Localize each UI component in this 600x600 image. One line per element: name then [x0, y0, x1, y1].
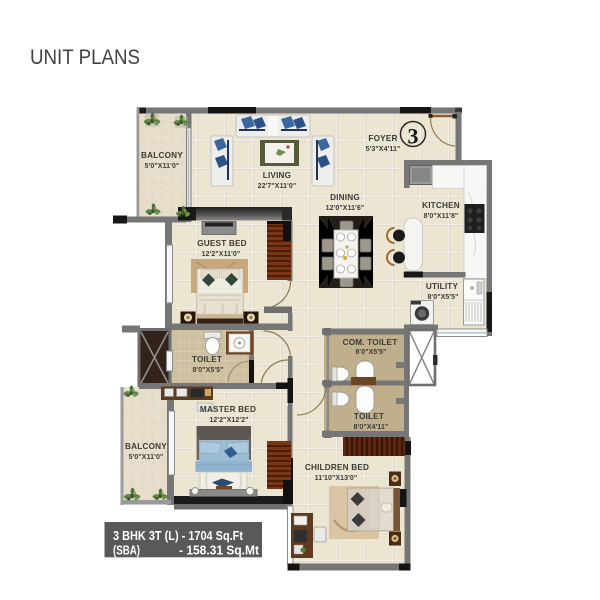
svg-text:3: 3: [408, 124, 419, 149]
svg-text:BALCONY: BALCONY: [141, 151, 183, 160]
svg-text:GUEST BED: GUEST BED: [197, 239, 247, 248]
svg-text:8'0"X4'11": 8'0"X4'11": [354, 424, 389, 431]
svg-text:5'3"X4'11": 5'3"X4'11": [366, 146, 401, 153]
svg-text:DINING: DINING: [330, 193, 360, 202]
svg-text:3 BHK 3T (L) - 1704 Sq.Ft: 3 BHK 3T (L) - 1704 Sq.Ft: [113, 528, 244, 543]
svg-text:UTILITY: UTILITY: [426, 282, 459, 291]
svg-text:LIVING: LIVING: [263, 171, 292, 180]
svg-text:CHILDREN BED: CHILDREN BED: [305, 463, 369, 472]
svg-text:5'0"X11'0": 5'0"X11'0": [129, 454, 164, 461]
svg-text:5'0"X11'0": 5'0"X11'0": [145, 163, 180, 170]
svg-text:TOILET: TOILET: [354, 412, 384, 421]
svg-text:(SBA): (SBA): [113, 543, 140, 558]
svg-text:12'2"X12'2": 12'2"X12'2": [209, 417, 248, 424]
svg-text:BALCONY: BALCONY: [125, 442, 167, 451]
svg-text:TOILET: TOILET: [192, 355, 222, 364]
svg-text:11'10"X13'0": 11'10"X13'0": [315, 475, 358, 482]
svg-text:- 158.31 Sq.Mt: - 158.31 Sq.Mt: [179, 543, 260, 558]
svg-text:UNIT PLANS: UNIT PLANS: [30, 45, 140, 69]
svg-text:22'7"X11'0": 22'7"X11'0": [258, 183, 297, 190]
svg-text:12'2"X11'0": 12'2"X11'0": [202, 251, 241, 258]
svg-text:KITCHEN: KITCHEN: [422, 201, 460, 210]
svg-text:12'0"X11'6": 12'0"X11'6": [326, 205, 365, 212]
svg-text:MASTER BED: MASTER BED: [200, 405, 256, 414]
svg-text:8'0"X11'8": 8'0"X11'8": [424, 213, 459, 220]
svg-text:8'0"X5'5": 8'0"X5'5": [427, 294, 458, 301]
svg-text:FOYER: FOYER: [368, 134, 397, 143]
svg-text:8'0"X5'5": 8'0"X5'5": [192, 367, 223, 374]
svg-text:8'0"X5'5": 8'0"X5'5": [355, 349, 386, 356]
svg-text:COM. TOILET: COM. TOILET: [343, 338, 398, 347]
